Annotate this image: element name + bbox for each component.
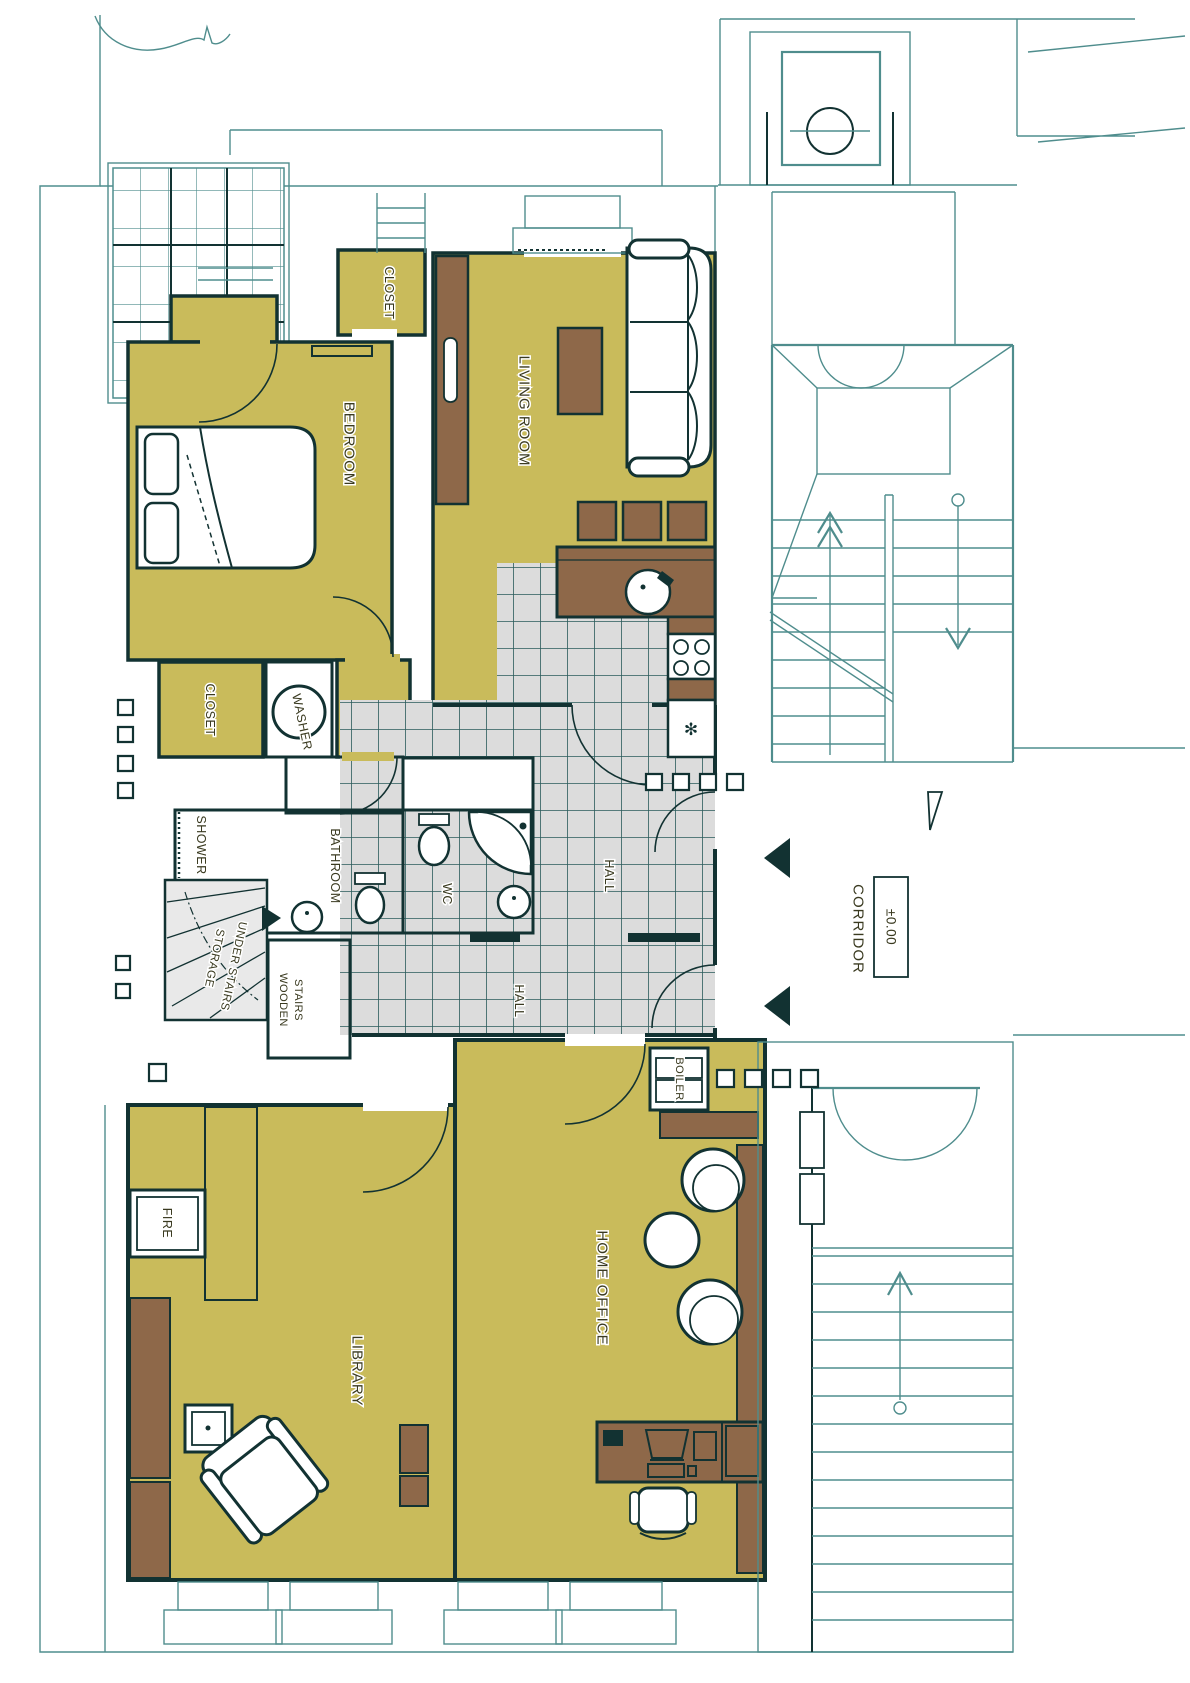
bedroom-furniture: [137, 427, 315, 568]
bedroom-entry-nook: [171, 296, 277, 342]
counter-column-mid: [668, 679, 715, 700]
office-sideboard: [660, 1112, 758, 1138]
window-bay-3: [444, 1582, 562, 1644]
tv-set: [444, 338, 457, 402]
bathroom-sink: [292, 902, 322, 932]
label-wooden-line2: STAIRS: [292, 979, 304, 1021]
window-bay-4: [556, 1582, 676, 1644]
label-wooden-line1: WOODEN: [277, 973, 289, 1027]
window-bay-2: [276, 1582, 392, 1644]
desk-phone: [603, 1430, 623, 1446]
label-wc: WC: [440, 883, 454, 905]
label-closet-top: CLOSET: [382, 266, 396, 319]
room-closet-top: [338, 250, 425, 335]
label-washer: WASHER: [289, 692, 315, 751]
shaft-block: [750, 32, 910, 185]
bar-stool-2: [623, 502, 661, 540]
strip-opening: [345, 654, 400, 665]
label-bedroom: BEDROOM: [341, 402, 358, 487]
label-shower: SHOWER: [194, 815, 208, 874]
bathroom-toilet-tank: [355, 873, 385, 884]
nook-opening: [200, 336, 270, 347]
vestibule-inner: [817, 388, 950, 474]
lower-unit: [128, 1034, 765, 1580]
home-office-door-gap: [565, 1034, 645, 1046]
br-landing-lines: [812, 1248, 1013, 1256]
coffee-table: [558, 328, 602, 414]
tub-chair-2-seat: [690, 1296, 738, 1344]
bar-stool-1: [578, 502, 616, 540]
label-level-mark: ±0.00: [884, 909, 899, 945]
window-bay-1: [164, 1582, 282, 1644]
label-hall-upper: HALL: [602, 859, 616, 892]
shower-handle-dot: [520, 823, 527, 830]
bathroom-toilet-bowl: [356, 887, 384, 923]
stair-stringer: [885, 495, 893, 762]
br-niche-1: [800, 1112, 824, 1168]
freezer-snowflake-icon: ✻: [684, 720, 698, 740]
library-shelf-left-1: [130, 1298, 170, 1478]
label-library: LIBRARY: [349, 1336, 366, 1407]
br-door-arcs: [833, 1088, 977, 1160]
label-closet-side: CLOSET: [203, 683, 217, 736]
sink-drain: [641, 585, 646, 590]
wc-sink-drain: [512, 896, 516, 900]
br-outer: [758, 1042, 1013, 1652]
stair-direction-arrow: [262, 906, 281, 931]
sofa-armrest-bottom: [629, 458, 689, 476]
bedroom-shelf: [312, 346, 372, 356]
door-swing-marker: [928, 792, 942, 830]
bay-outer: [525, 196, 620, 228]
columns-row-lower: [717, 1070, 818, 1087]
living-window-gap: [524, 247, 621, 257]
label-hall-lower: HALL: [512, 984, 526, 1017]
bath-door-gap: [342, 752, 394, 761]
floor-plan-drawing: ✻: [0, 0, 1190, 1683]
label-boiler: BOILER: [673, 1057, 685, 1100]
br-treads: [812, 1284, 1013, 1620]
right-context-lines: [718, 19, 1185, 1035]
threshold-mat-right: [628, 933, 700, 942]
pillow-2: [145, 503, 178, 563]
br-niche-2: [800, 1174, 824, 1224]
stair-up-arrow: [818, 513, 842, 755]
pillow-1: [145, 434, 178, 494]
floor-plan-page: ✻: [0, 0, 1190, 1683]
wc-wall-band: [403, 758, 533, 810]
bathroom-sink-drain: [305, 911, 309, 915]
bottom-right-stairwell: [758, 1042, 1013, 1652]
br-up-arrow: [888, 1273, 912, 1414]
wc-toilet-tank: [419, 814, 449, 825]
sofa-body: [627, 248, 711, 467]
ladder-grate: [377, 193, 425, 253]
shaft-jambs: [767, 112, 893, 185]
office-bookshelf-right: [737, 1145, 763, 1573]
stairwell-upper-room: [772, 192, 955, 345]
tub-chair-1-seat: [693, 1165, 739, 1211]
central-stairwell: [764, 192, 1013, 1026]
hall-right-wall: [715, 705, 760, 1042]
library-shelf-right-2: [400, 1476, 428, 1506]
entry-marker-upper: [764, 838, 790, 878]
closet-door-gap: [352, 329, 397, 341]
label-bathroom: BATHROOM: [328, 828, 342, 903]
round-table: [645, 1213, 699, 1267]
sofa-armrest-top: [629, 240, 689, 258]
office-chair-arm-right: [687, 1492, 696, 1524]
stair-treads-right: [893, 520, 1013, 632]
wc-toilet-bowl: [419, 827, 449, 865]
vestibule-door-arcs: [818, 345, 904, 388]
living-window-bay: [513, 196, 632, 253]
side-table-dot: [206, 1426, 211, 1431]
library-door-gap: [363, 1099, 448, 1111]
entry-marker-lower: [764, 986, 790, 1026]
office-chair-arm-left: [630, 1492, 639, 1524]
label-living-room: LIVING ROOM: [516, 355, 533, 466]
stair-down-arrow: [946, 494, 970, 648]
library-shelf-right-1: [400, 1425, 428, 1473]
label-corridor: CORRIDOR: [850, 884, 867, 974]
label-home-office: HOME OFFICE: [594, 1230, 611, 1345]
terrain-squiggle: [95, 16, 230, 50]
wc-sink: [498, 886, 530, 918]
bar-stool-3: [668, 502, 706, 540]
library-shelf-left-2: [130, 1482, 170, 1578]
office-chair-seat: [638, 1488, 688, 1532]
label-fireplace: FIRE: [160, 1208, 174, 1238]
counter-column-top: [668, 617, 715, 634]
